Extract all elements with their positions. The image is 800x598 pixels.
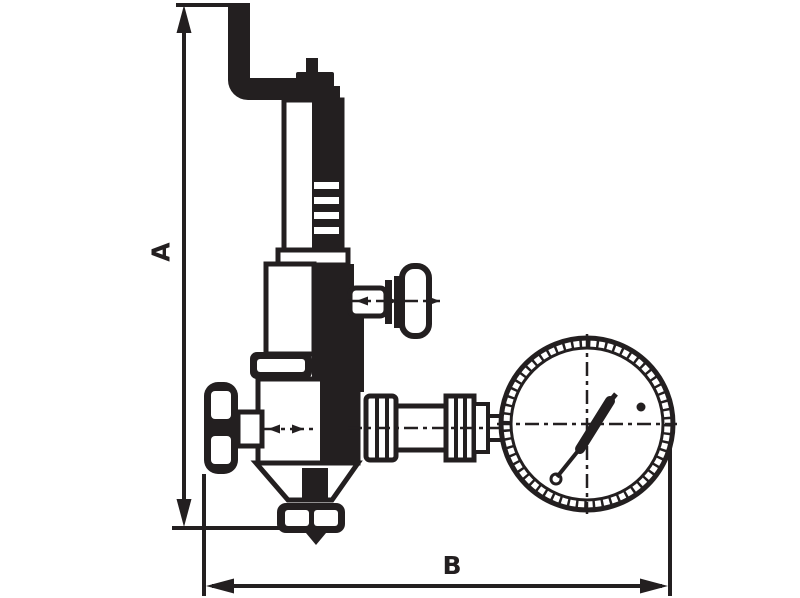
- spring-coil: [314, 197, 339, 204]
- taper-shade: [302, 468, 328, 502]
- pressure-gauge: [497, 334, 677, 514]
- handwheel-slot: [211, 391, 231, 419]
- arrow-right-icon: [640, 579, 668, 594]
- valve-body: [250, 344, 360, 545]
- set-pressure-dot: [637, 403, 646, 412]
- dimension-a-label: A: [147, 242, 176, 262]
- arrow-up-icon: [177, 5, 192, 33]
- valve-dimensional-drawing: A B: [0, 0, 800, 598]
- drawing-canvas: A B: [0, 0, 800, 598]
- arrow-left-icon: [206, 579, 234, 594]
- arrow-down-icon: [177, 499, 192, 527]
- spring-coil: [314, 227, 339, 234]
- spring-coil: [314, 212, 339, 219]
- body-shade: [320, 381, 358, 461]
- centerline-arrow-icon: [428, 297, 440, 306]
- lock-nut: [296, 72, 334, 88]
- handwheel-slot: [211, 436, 231, 464]
- spring-coil: [314, 182, 339, 189]
- dimension-b-label: B: [442, 551, 461, 580]
- upper-flange-slot: [257, 359, 305, 372]
- handwheel-stem: [238, 412, 262, 446]
- outlet-slot: [314, 510, 338, 526]
- outlet-slot: [285, 510, 309, 526]
- gauge-pipe: [348, 396, 504, 460]
- inlet-handwheel: [204, 382, 262, 474]
- mid-column: [266, 264, 314, 354]
- spring-housing: [278, 100, 348, 265]
- drain-tip: [306, 533, 326, 545]
